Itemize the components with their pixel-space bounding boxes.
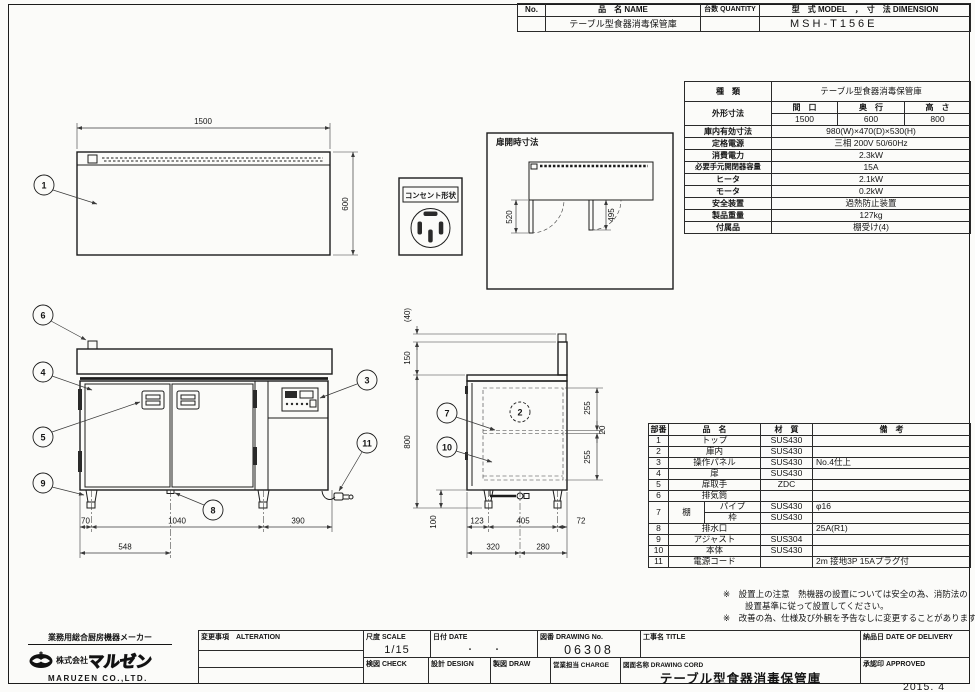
power-cord	[322, 491, 335, 499]
company-name-en: MARUZEN CO.,LTD.	[48, 674, 172, 683]
part-name: 扉	[669, 469, 761, 480]
part-no: 4	[649, 469, 669, 480]
alteration-row	[199, 667, 363, 684]
part-name: 排気筒	[669, 491, 761, 502]
callout-9: 9	[40, 479, 45, 489]
delivery-cell: 納品日 DATE OF DELIVERY	[860, 630, 970, 657]
spec-outer-val-d: 600	[838, 114, 905, 126]
maruzen-logo-icon	[28, 651, 54, 669]
company-block: 業務用総合厨房機器メーカー 株式会社 マルゼン MARUZEN CO.,LTD.	[28, 632, 172, 683]
parts-row: 10本体SUS430	[649, 546, 971, 557]
project-title-label: 工事名 TITLE	[641, 631, 860, 643]
callout-7: 7	[444, 409, 449, 419]
parts-table: 部番 品 名 材 質 備 考 1トップSUS430 2庫内SUS430 3操作パ…	[648, 423, 971, 568]
part-note	[813, 469, 971, 480]
part-no: 3	[649, 458, 669, 469]
callout-10: 10	[442, 443, 452, 453]
dim-side-255b: 255	[583, 450, 592, 464]
callout-5: 5	[40, 433, 45, 443]
part-material: SUS304	[761, 535, 813, 546]
spec-row-value: 棚受け(4)	[772, 222, 971, 234]
counter-side	[467, 375, 567, 381]
body-side	[467, 381, 567, 490]
part-material: SUS430	[761, 502, 813, 513]
spec-row-value: 三相 200V 50/60Hz	[772, 138, 971, 150]
alteration-label: 変更事項 ALTERATION	[199, 631, 363, 650]
header-qty-label: 台数 QUANTITY	[701, 4, 760, 17]
dim-side-150: 150	[403, 351, 412, 365]
header-model-value: MSH-T156E	[760, 17, 971, 32]
company-brand: マルゼン	[87, 648, 154, 672]
spec-row-label: 付属品	[685, 222, 772, 234]
part-name: 庫内	[669, 447, 761, 458]
spec-row-label: 庫内有効寸法	[685, 126, 772, 138]
drawing-name-value: テーブル型食器消毒保管庫	[621, 668, 860, 684]
note-line-2: 設置基準に従って設置してください。	[745, 600, 889, 612]
spec-table: 種 類 テーブル型食器消毒保管庫 外形寸法 間 口 奥 行 高 さ 1500 6…	[684, 81, 971, 234]
date-label: 日付 DATE	[431, 631, 537, 643]
parts-row: 1トップSUS430	[649, 436, 971, 447]
hinge	[253, 447, 257, 465]
charge-label: 営業担当 CHARGE	[551, 658, 620, 670]
spec-row-value: 0.2kW	[772, 186, 971, 198]
dim-front-1040: 1040	[168, 517, 186, 526]
parts-row: 8排水口25A(R1)	[649, 524, 971, 535]
spec-row-value: 127kg	[772, 210, 971, 222]
parts-row: 2庫内SUS430	[649, 447, 971, 458]
part-note	[813, 480, 971, 491]
part-name: 操作パネル	[669, 458, 761, 469]
parts-row: 5扉取手ZDC	[649, 480, 971, 491]
part-material: SUS430	[761, 546, 813, 557]
part-material: SUS430	[761, 513, 813, 524]
spec-row-value: 15A	[772, 162, 971, 174]
spec-outer-col-w: 間 口	[772, 102, 838, 114]
dim-door-right: 495	[607, 208, 616, 222]
part-note	[813, 546, 971, 557]
scale-label: 尺度 SCALE	[364, 631, 430, 643]
dim-door-left: 520	[505, 210, 514, 224]
part-note	[813, 436, 971, 447]
part-no: 9	[649, 535, 669, 546]
hinge	[78, 451, 82, 472]
company-tagline: 業務用総合厨房機器メーカー	[28, 632, 172, 645]
drawing-no-label: 図番 DRAWING No.	[538, 631, 640, 643]
drawing-no-value: 06308	[538, 643, 640, 657]
part-note	[813, 447, 971, 458]
parts-header-material: 材 質	[761, 424, 813, 436]
dim-front-390: 390	[291, 517, 305, 526]
part-no: 11	[649, 557, 669, 568]
door-handle-right	[177, 391, 199, 409]
dim-side-100: 100	[429, 515, 438, 529]
part-no: 10	[649, 546, 669, 557]
spec-row-value: 2.3kW	[772, 150, 971, 162]
spec-row-value: 980(W)×470(D)×530(H)	[772, 126, 971, 138]
part-material	[761, 557, 813, 568]
parts-row: 3操作パネルSUS430No.4仕上	[649, 458, 971, 469]
part-material: SUS430	[761, 458, 813, 469]
dim-front-70: 70	[81, 517, 90, 526]
dim-side-405: 405	[516, 517, 530, 526]
parts-header-note: 備 考	[813, 424, 971, 436]
header-no-label: No.	[518, 4, 546, 17]
drawing-no-cell: 図番 DRAWING No. 06308	[537, 630, 640, 657]
part-note	[813, 535, 971, 546]
dim-side-72: 72	[577, 517, 586, 526]
drawing-sheet: 1500 600 1 コンセント形状 扉開時寸法	[0, 0, 975, 692]
date-value: ・ ・	[431, 644, 537, 655]
door-open-label: 扉開時寸法	[495, 137, 539, 147]
delivery-label: 納品日 DATE OF DELIVERY	[861, 631, 970, 643]
draw-cell: 製図 DRAW	[490, 657, 550, 684]
part-name: トップ	[669, 436, 761, 447]
alteration-row	[199, 650, 363, 667]
dim-side-280: 280	[536, 543, 550, 552]
spec-row-value: 2.1kW	[772, 174, 971, 186]
spec-row-label: モータ	[685, 186, 772, 198]
header-name-value: テーブル型食器消毒保管庫	[546, 17, 701, 32]
note-line-1: ※ 設置上の注意 熱機器の設置については安全の為、消防法の	[723, 588, 968, 600]
spec-kind-value: テーブル型食器消毒保管庫	[772, 82, 971, 102]
parts-row: 7 棚 パイプ SUS430 φ16	[649, 502, 971, 513]
spec-row-label: 製品重量	[685, 210, 772, 222]
plug	[334, 493, 343, 500]
header-model-label: 型 式 MODEL ， 寸 法 DIMENSION	[760, 4, 971, 17]
spec-outer-val-h: 800	[905, 114, 971, 126]
parts-row: 6排気筒	[649, 491, 971, 502]
door-handle-left	[142, 391, 164, 409]
part-no: 6	[649, 491, 669, 502]
part-material	[761, 491, 813, 502]
outlet-label: コンセント形状	[405, 191, 457, 200]
dim-top-width: 1500	[194, 117, 212, 126]
exhaust-stub	[88, 341, 97, 349]
spec-outer-col-h: 高 さ	[905, 102, 971, 114]
part-no: 5	[649, 480, 669, 491]
exhaust-stub-side	[558, 334, 566, 342]
part-note: φ16	[813, 502, 971, 513]
spec-outer-label: 外形寸法	[685, 102, 772, 126]
callout-1: 1	[41, 181, 46, 191]
part-note	[813, 491, 971, 502]
company-prefix: 株式会社	[56, 655, 88, 666]
spec-row-label: 定格電源	[685, 138, 772, 150]
callout-4: 4	[40, 368, 45, 378]
part-note: No.4仕上	[813, 458, 971, 469]
part-name: 扉取手	[669, 480, 761, 491]
callout-2: 2	[517, 408, 522, 418]
scale-cell: 尺度 SCALE 1/15	[363, 630, 430, 657]
project-title-cell: 工事名 TITLE	[640, 630, 860, 657]
draw-label: 製図 DRAW	[491, 658, 550, 670]
header-qty-value	[701, 17, 760, 32]
spec-outer-val-w: 1500	[772, 114, 838, 126]
note-line-3: ※ 改善の為、仕様及び外観を予告なしに変更することがあります。	[723, 612, 975, 624]
callout-3: 3	[364, 376, 369, 386]
header-no-value	[518, 17, 546, 32]
header-name-label: 品 名 NAME	[546, 4, 701, 17]
design-cell: 設計 DESIGN	[428, 657, 490, 684]
part-material: SUS430	[761, 436, 813, 447]
parts-row: 11電源コード2m 接地3P 15Aプラグ付	[649, 557, 971, 568]
parts-row: 9アジャストSUS304	[649, 535, 971, 546]
door-open-view: 扉開時寸法 520 495	[487, 133, 673, 289]
counter-top	[77, 349, 332, 374]
callout-11: 11	[362, 439, 372, 449]
design-label: 設計 DESIGN	[429, 658, 490, 670]
part-no: 1	[649, 436, 669, 447]
approved-cell: 承認印 APPROVED	[860, 657, 970, 684]
part-sub: パイプ	[705, 502, 761, 513]
side-view: (40) 150 800 100 255 20 255 123	[403, 308, 607, 558]
dim-side-40: (40)	[403, 308, 412, 323]
charge-cell: 営業担当 CHARGE	[550, 657, 620, 684]
part-material: SUS430	[761, 469, 813, 480]
part-name: 電源コード	[669, 557, 761, 568]
part-material: SUS430	[761, 447, 813, 458]
dim-top-depth: 600	[341, 197, 350, 211]
alteration-box: 変更事項 ALTERATION	[198, 630, 363, 684]
parts-row: 4扉SUS430	[649, 469, 971, 480]
dim-side-320: 320	[486, 543, 500, 552]
top-view: 1500 600 1	[34, 117, 358, 255]
part-name: 本体	[669, 546, 761, 557]
dim-front-548: 548	[118, 543, 132, 552]
drawing-name-cell: 図面名称 DRAWING CORD テーブル型食器消毒保管庫	[620, 657, 860, 684]
dim-side-800: 800	[403, 435, 412, 449]
parts-header-no: 部番	[649, 424, 669, 436]
part-name: 棚	[669, 502, 705, 524]
dim-side-20: 20	[598, 425, 607, 434]
issue-date: 2015. 4	[903, 681, 945, 692]
hinge	[78, 389, 82, 410]
part-note	[813, 513, 971, 524]
spec-kind-label: 種 類	[685, 82, 772, 102]
part-material	[761, 524, 813, 535]
dim-side-255a: 255	[583, 401, 592, 415]
part-no: 7	[649, 502, 669, 524]
part-name: アジャスト	[669, 535, 761, 546]
spec-row-value: 過熱防止装置	[772, 198, 971, 210]
spec-outer-col-d: 奥 行	[838, 102, 905, 114]
dim-side-123: 123	[470, 517, 484, 526]
interior-dashed	[483, 388, 563, 480]
approved-label: 承認印 APPROVED	[861, 658, 970, 670]
part-name: 排水口	[669, 524, 761, 535]
backsplash	[558, 342, 567, 375]
callout-8: 8	[210, 506, 215, 516]
part-note: 25A(R1)	[813, 524, 971, 535]
check-label: 検図 CHECK	[364, 658, 428, 670]
callout-6: 6	[40, 311, 45, 321]
part-no: 8	[649, 524, 669, 535]
spec-row-label: 安全装置	[685, 198, 772, 210]
scale-value: 1/15	[364, 644, 430, 656]
spec-row-label: ヒータ	[685, 174, 772, 186]
hinge	[253, 390, 257, 408]
date-cell: 日付 DATE ・ ・	[430, 630, 537, 657]
spec-row-label: 必要手元開閉器容量	[685, 162, 772, 174]
front-view: 70 1040 390 548 6 4 5 9 8 11 3	[33, 305, 377, 558]
part-material: ZDC	[761, 480, 813, 491]
parts-header-name: 品 名	[669, 424, 761, 436]
part-sub: 枠	[705, 513, 761, 524]
part-note: 2m 接地3P 15Aプラグ付	[813, 557, 971, 568]
header-table: No. 品 名 NAME 台数 QUANTITY 型 式 MODEL ， 寸 法…	[517, 3, 971, 32]
check-cell: 検図 CHECK	[363, 657, 428, 684]
part-no: 2	[649, 447, 669, 458]
outlet-diagram: コンセント形状	[399, 178, 462, 255]
spec-row-label: 消費電力	[685, 150, 772, 162]
